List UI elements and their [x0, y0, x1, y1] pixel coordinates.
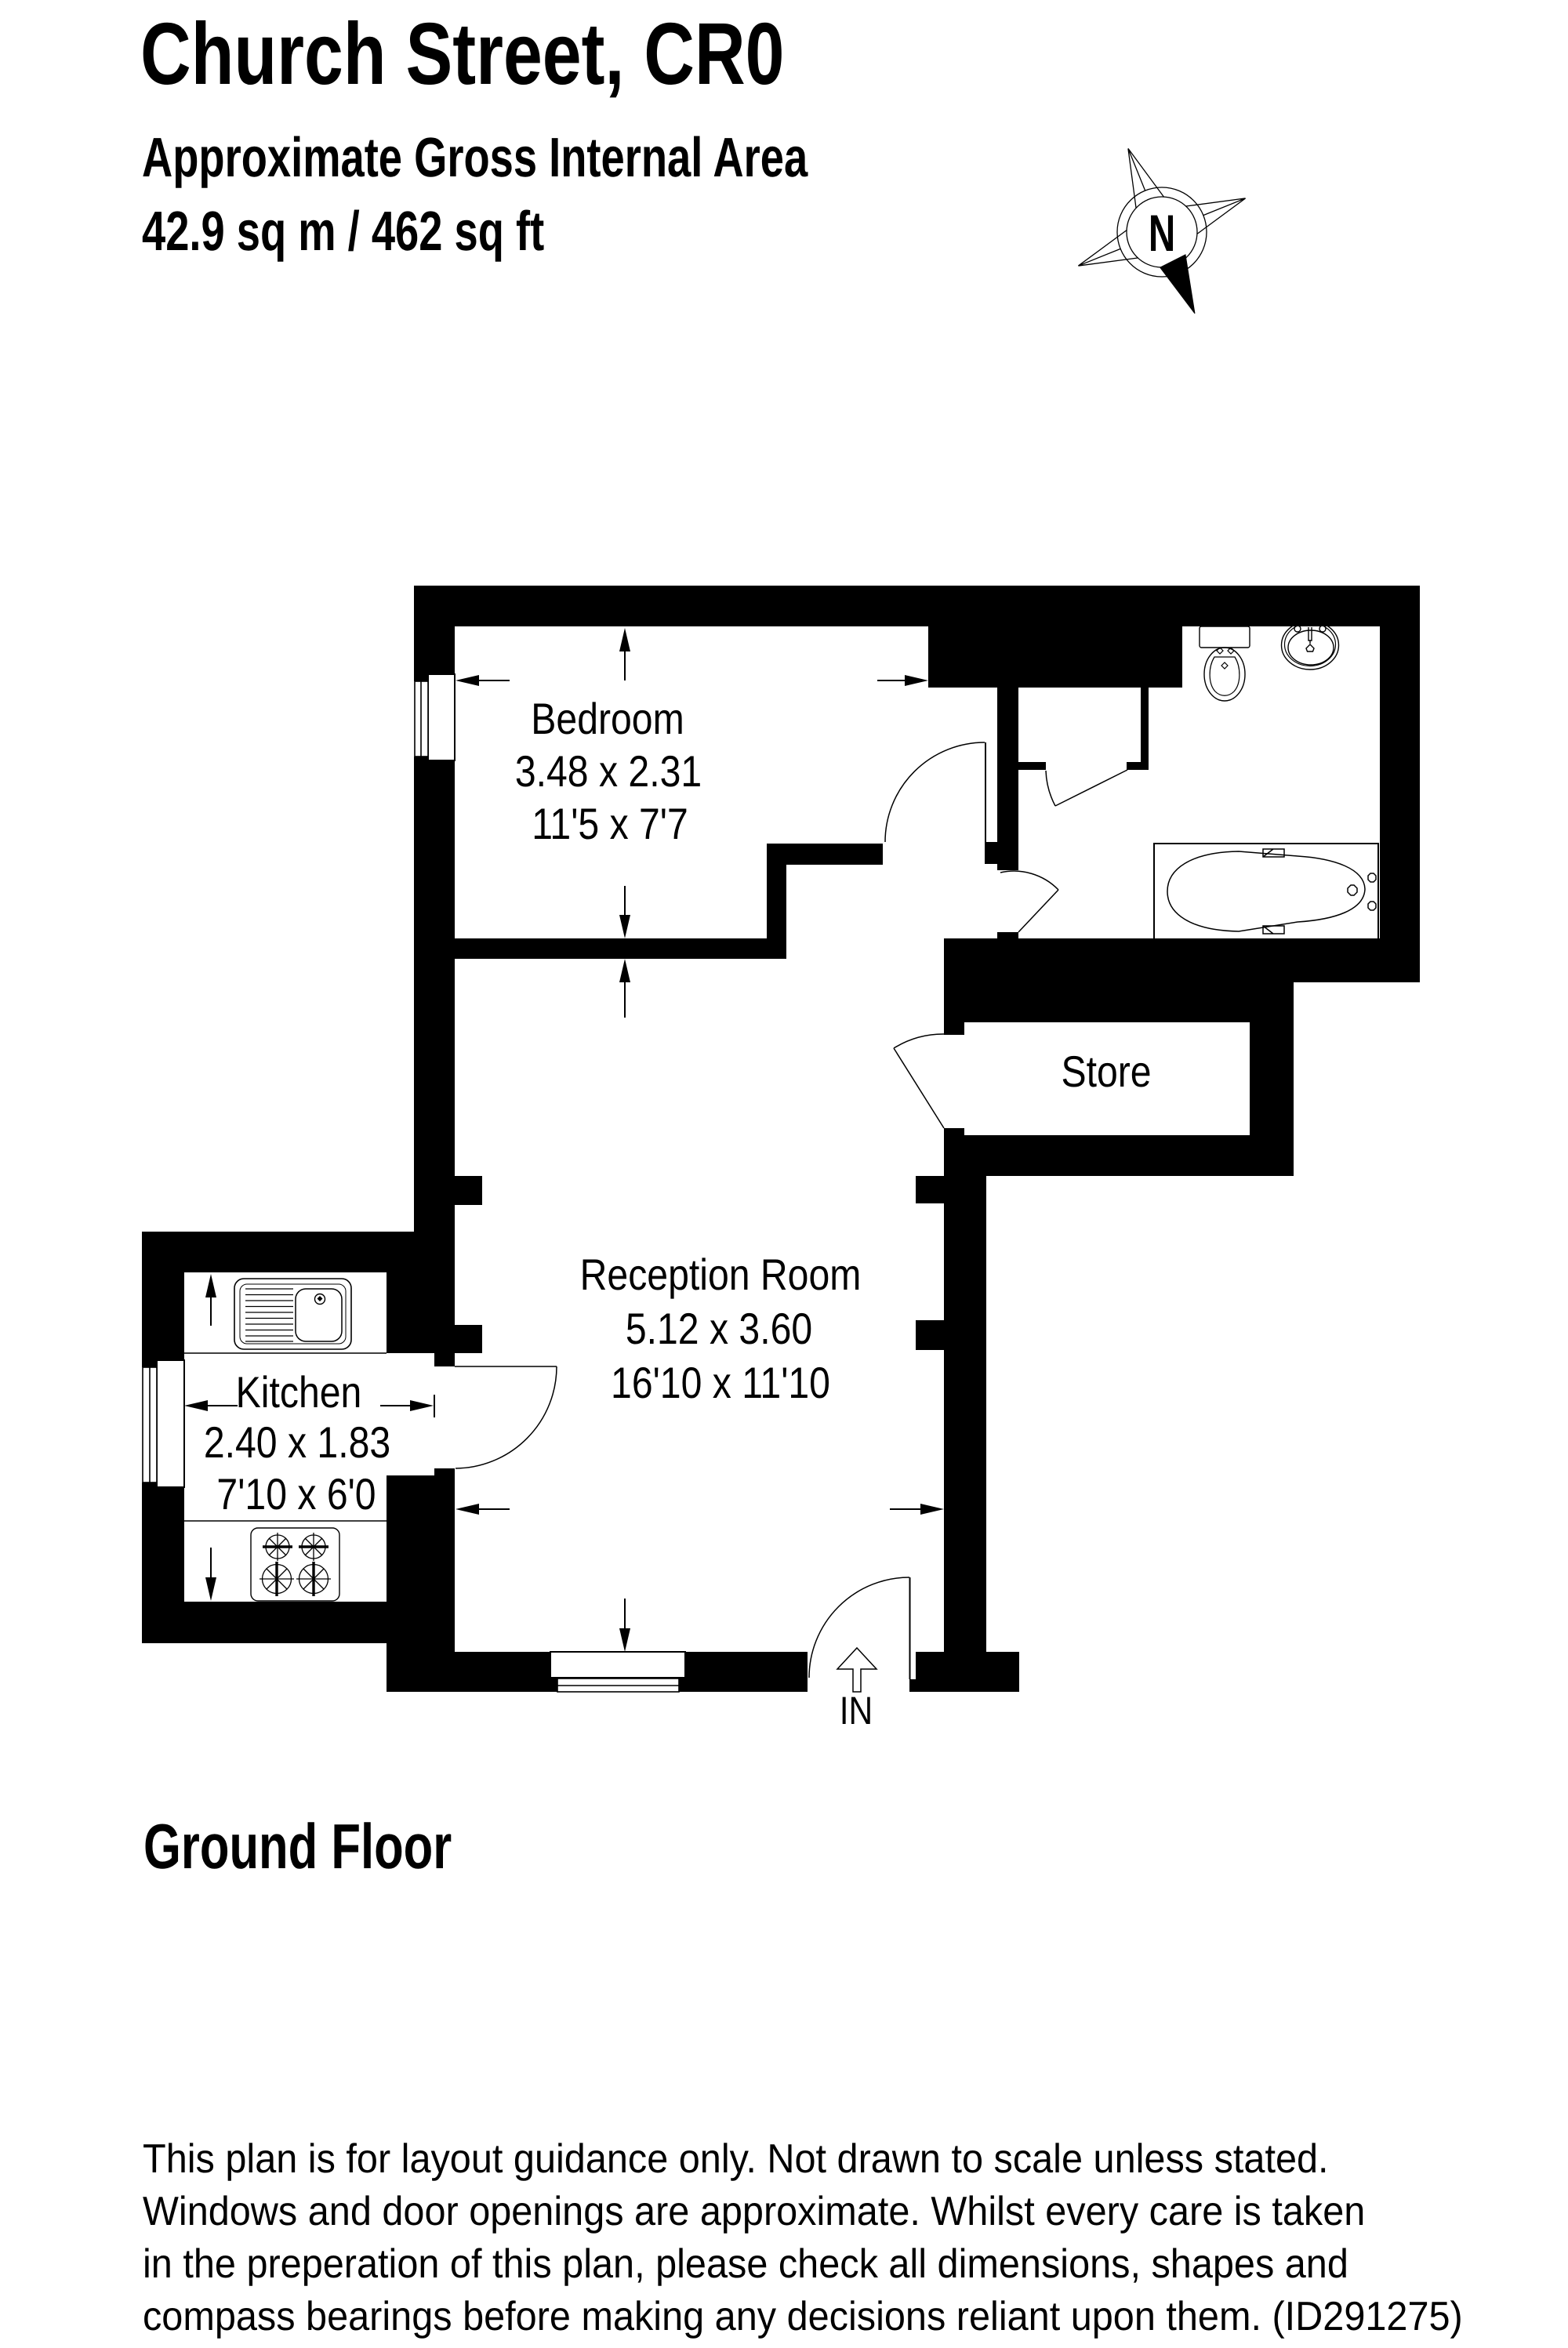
- svg-text:42.9 sq m / 462 sq ft: 42.9 sq m / 462 sq ft: [142, 201, 544, 263]
- svg-text:Approximate Gross Internal Are: Approximate Gross Internal Area: [142, 127, 808, 189]
- svg-text:Reception Room: Reception Room: [580, 1250, 862, 1299]
- svg-text:Windows and door openings are: Windows and door openings are approximat…: [143, 2189, 1365, 2234]
- svg-text:IN: IN: [840, 1689, 873, 1733]
- svg-text:3.48 x 2.31: 3.48 x 2.31: [515, 746, 702, 796]
- svg-text:2.40 x 1.83: 2.40 x 1.83: [204, 1417, 390, 1467]
- svg-text:This plan is for layout guidan: This plan is for layout guidance only. N…: [143, 2136, 1329, 2182]
- svg-text:compass bearings before making: compass bearings before making any decis…: [143, 2294, 1463, 2339]
- svg-text:Church Street, CR0: Church Street, CR0: [140, 5, 785, 103]
- svg-text:Kitchen: Kitchen: [236, 1367, 362, 1417]
- svg-text:Ground Floor: Ground Floor: [143, 1812, 452, 1882]
- svg-text:7'10 x 6'0: 7'10 x 6'0: [216, 1469, 376, 1519]
- svg-text:11'5 x 7'7: 11'5 x 7'7: [532, 799, 688, 848]
- svg-text:N: N: [1149, 204, 1175, 262]
- svg-text:16'10 x 11'10: 16'10 x 11'10: [611, 1358, 830, 1407]
- svg-text:in the preperation of this pla: in the preperation of this plan, please …: [143, 2241, 1348, 2287]
- svg-text:Store: Store: [1061, 1047, 1151, 1096]
- svg-text:5.12 x 3.60: 5.12 x 3.60: [626, 1304, 812, 1353]
- svg-text:Bedroom: Bedroom: [531, 694, 684, 743]
